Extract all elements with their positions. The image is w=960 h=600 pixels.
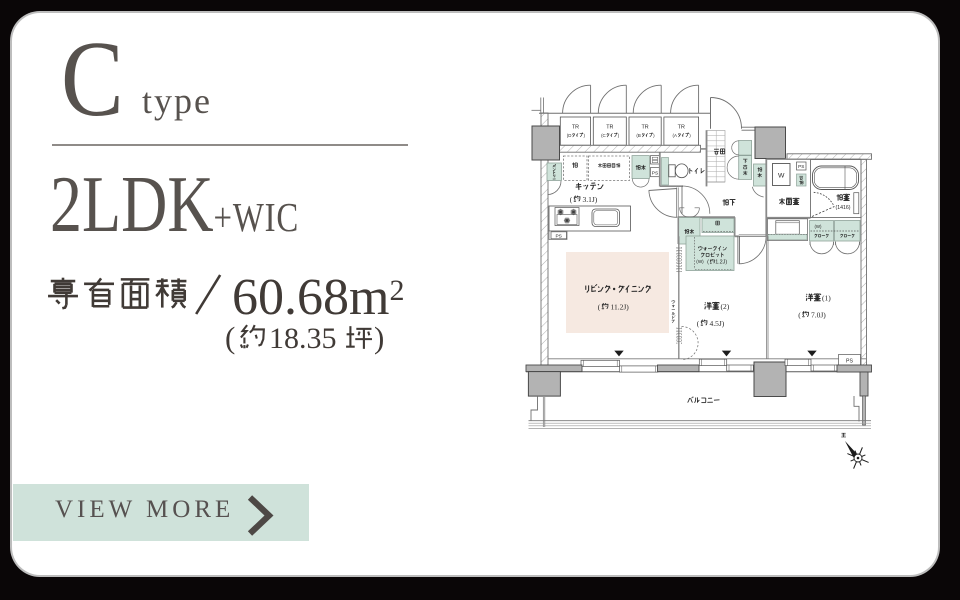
svg-text:(: ( xyxy=(570,195,573,204)
svg-text:(1): (1) xyxy=(822,294,831,303)
svg-text:PS: PS xyxy=(846,359,853,365)
svg-text:TR: TR xyxy=(606,125,613,131)
svg-text:TR: TR xyxy=(678,125,685,131)
svg-text:(B: (B xyxy=(636,133,640,138)
svg-text:(: ( xyxy=(707,260,709,266)
svg-text:1.2J): 1.2J) xyxy=(715,260,727,266)
svg-text:TR: TR xyxy=(572,125,579,131)
svg-text:(: ( xyxy=(697,319,700,328)
svg-text:PS: PS xyxy=(555,234,561,240)
svg-text:(W): (W) xyxy=(814,224,822,229)
svg-text:PS: PS xyxy=(798,164,804,169)
svg-text:11.2J): 11.2J) xyxy=(611,303,630,312)
svg-text:(D: (D xyxy=(567,133,572,138)
svg-text:(C: (C xyxy=(601,133,606,138)
svg-text:7.0J): 7.0J) xyxy=(811,311,826,320)
svg-text:(1416): (1416) xyxy=(836,205,851,211)
svg-text:(: ( xyxy=(798,311,801,320)
svg-text:W: W xyxy=(778,173,785,180)
svg-text:PS: PS xyxy=(652,171,658,177)
svg-text:(A: (A xyxy=(673,133,677,138)
svg-text:3.1J): 3.1J) xyxy=(583,195,598,204)
svg-text:TR: TR xyxy=(642,125,649,131)
svg-text:(2): (2) xyxy=(721,302,730,311)
svg-text:(W): (W) xyxy=(696,259,704,264)
svg-text:4.5J): 4.5J) xyxy=(710,319,725,328)
